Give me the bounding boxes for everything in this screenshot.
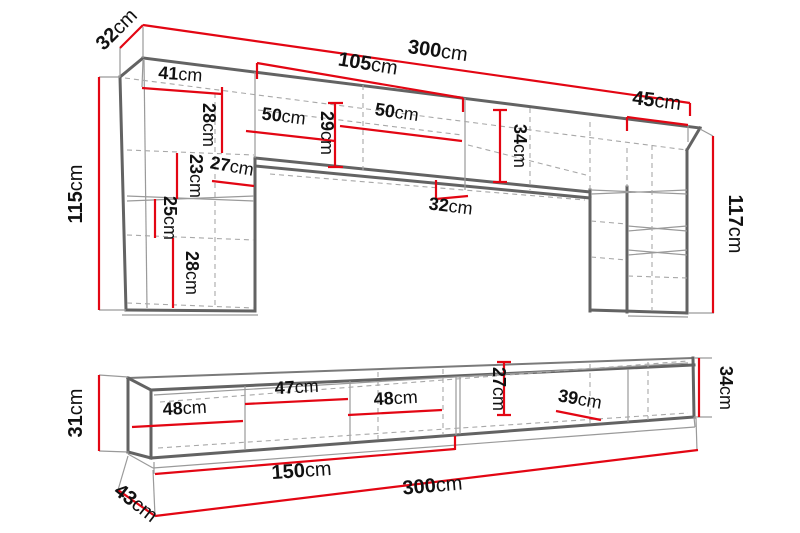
dim-stand-48a-label: 48cm xyxy=(162,397,207,419)
bottom-unit-structure xyxy=(128,358,695,468)
dim-top-depth-label: 32cm xyxy=(92,5,142,55)
dim-stand-47-label: 47cm xyxy=(274,376,319,398)
dim-row-inner-height-label: 29cm xyxy=(317,111,337,155)
dim-top-center-width-label: 105cm xyxy=(337,49,400,80)
dim-stand-total-width-label: 300cm xyxy=(402,472,464,499)
dim-stand-half-width-label: 150cm xyxy=(271,458,332,484)
dim-left-section1-label: 28cm xyxy=(199,103,219,147)
dim-row-height-label: 34cm xyxy=(510,124,530,168)
dim-left-section3-label: 25cm xyxy=(160,196,180,240)
dim-stand-height-left-label: 31cm xyxy=(65,389,87,438)
diagram-page: 32cm 300cm 105cm 41cm 45cm 28cm 23cm 25c… xyxy=(0,0,800,533)
dim-left-column-width-label: 41cm xyxy=(158,63,203,86)
dim-left-section2-label: 23cm xyxy=(186,154,206,198)
dim-left-section4-label: 28cm xyxy=(182,251,202,295)
dim-left-depth-27-label: 27cm xyxy=(209,152,256,179)
dim-right-column-width-label: 45cm xyxy=(631,87,682,115)
dim-stand-height-right-label: 34cm xyxy=(716,366,736,410)
dim-shelf-50b-label: 50cm xyxy=(374,99,420,125)
dim-row-depth-label: 32cm xyxy=(428,193,474,218)
dim-left-height-label: 115cm xyxy=(65,165,87,224)
top-unit-structure xyxy=(120,58,700,317)
dim-stand-inner-height-label: 27cm xyxy=(489,367,509,411)
dim-shelf-50a-label: 50cm xyxy=(261,103,307,128)
furniture-dimension-diagram: 32cm 300cm 105cm 41cm 45cm 28cm 23cm 25c… xyxy=(0,0,800,533)
dim-right-height-label: 117cm xyxy=(724,195,746,254)
dim-top-total-width-label: 300cm xyxy=(407,36,470,66)
dim-stand-39-label: 39cm xyxy=(557,385,604,412)
dim-stand-48b-label: 48cm xyxy=(373,387,418,409)
